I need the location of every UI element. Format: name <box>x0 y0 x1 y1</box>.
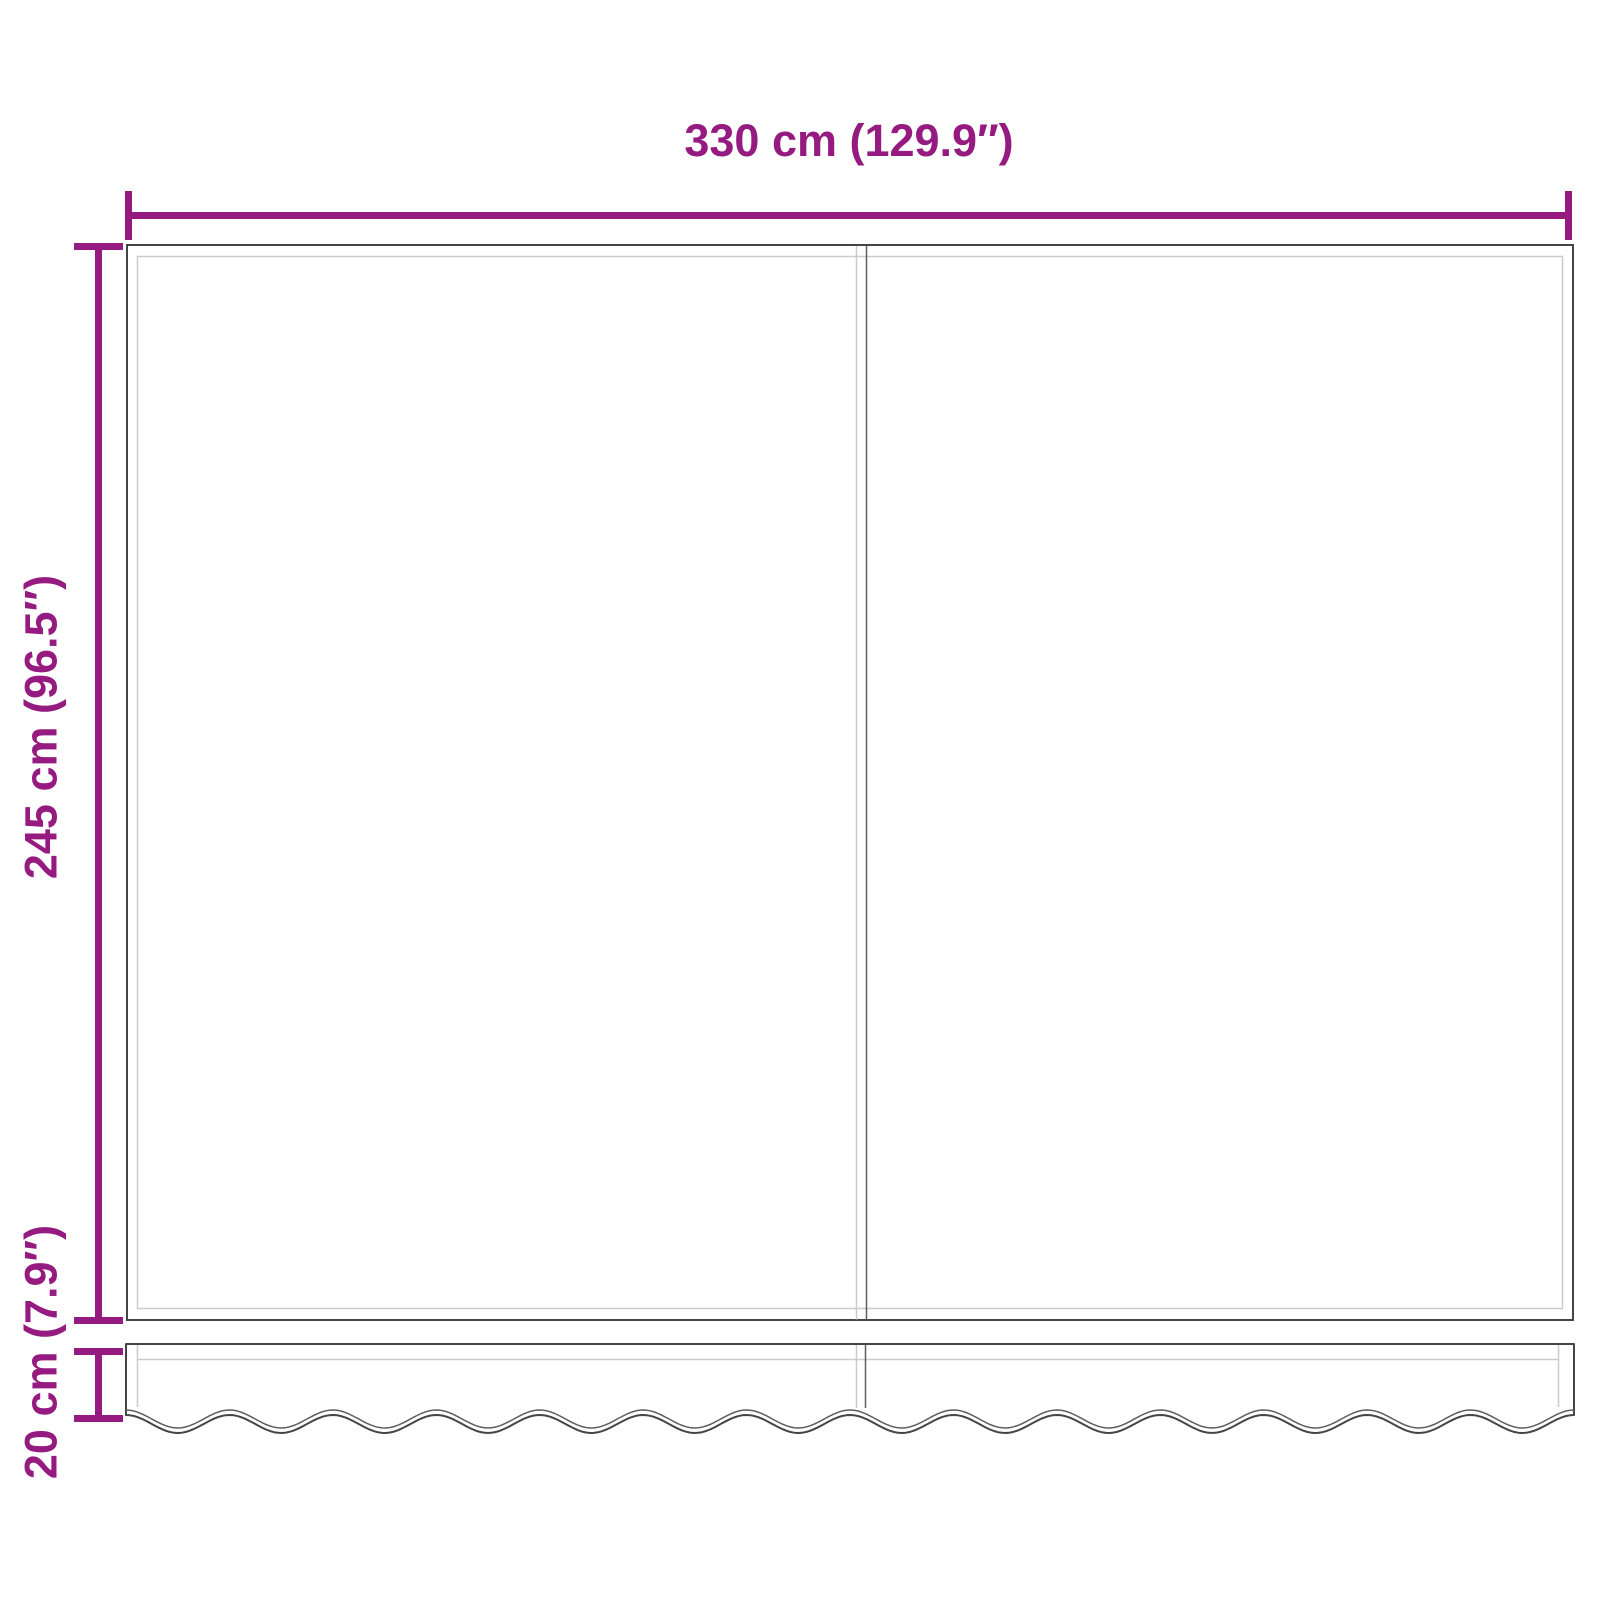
fabric-panel <box>127 245 1573 1320</box>
valance-dimension-label: 20 cm (7.9″) <box>19 1225 64 1479</box>
height-dimension-label: 245 cm (96.5″) <box>19 575 64 879</box>
width-dimension <box>125 191 1572 240</box>
valance-dimension-tick-bottom <box>74 1415 123 1422</box>
valance-dimension <box>74 1348 123 1422</box>
width-dimension-tick-left <box>125 191 132 240</box>
height-dimension <box>74 243 123 1324</box>
height-dimension-line <box>95 246 102 1319</box>
height-dimension-tick-bottom <box>74 1317 123 1324</box>
diagram-canvas <box>0 0 1600 1600</box>
dimension-diagram: 330 cm (129.9″) 245 cm (96.5″) 20 cm (7.… <box>0 0 1600 1600</box>
width-dimension-label: 330 cm (129.9″) <box>684 118 1013 163</box>
valance <box>126 1344 1574 1433</box>
height-dimension-tick-top <box>74 243 123 250</box>
valance-dimension-tick-top <box>74 1348 123 1355</box>
fabric-panel-outline <box>127 245 1573 1320</box>
width-dimension-line <box>128 212 1569 219</box>
width-dimension-tick-right <box>1565 191 1572 240</box>
valance-dimension-line <box>95 1351 102 1419</box>
valance-outline <box>126 1344 1574 1433</box>
